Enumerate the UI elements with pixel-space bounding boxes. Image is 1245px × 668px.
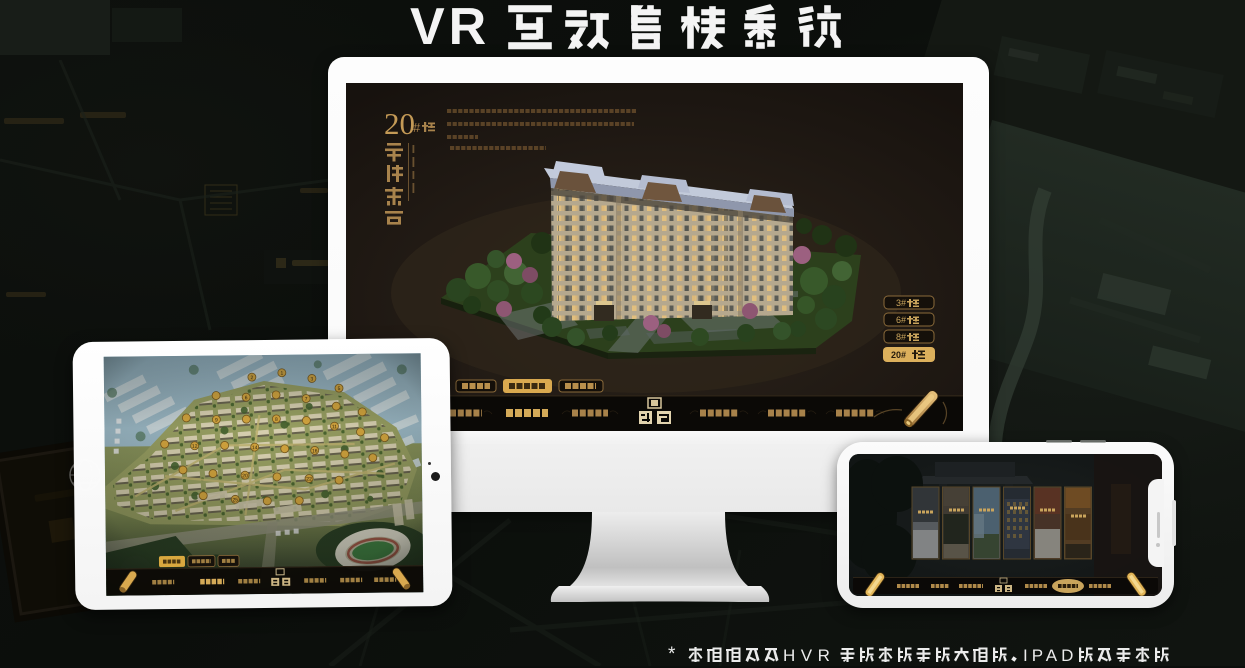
svg-text:VR: VR <box>410 0 490 56</box>
svg-text:IPAD: IPAD <box>1023 646 1077 665</box>
svg-text:HVR: HVR <box>783 646 835 665</box>
svg-text:8#: 8# <box>896 332 906 342</box>
svg-text:20#: 20# <box>891 350 906 360</box>
svg-text:6#: 6# <box>896 315 906 325</box>
svg-text:3#: 3# <box>896 298 906 308</box>
svg-text:20: 20 <box>384 106 415 141</box>
svg-text:#: # <box>413 120 421 135</box>
svg-text:*: * <box>668 646 676 665</box>
